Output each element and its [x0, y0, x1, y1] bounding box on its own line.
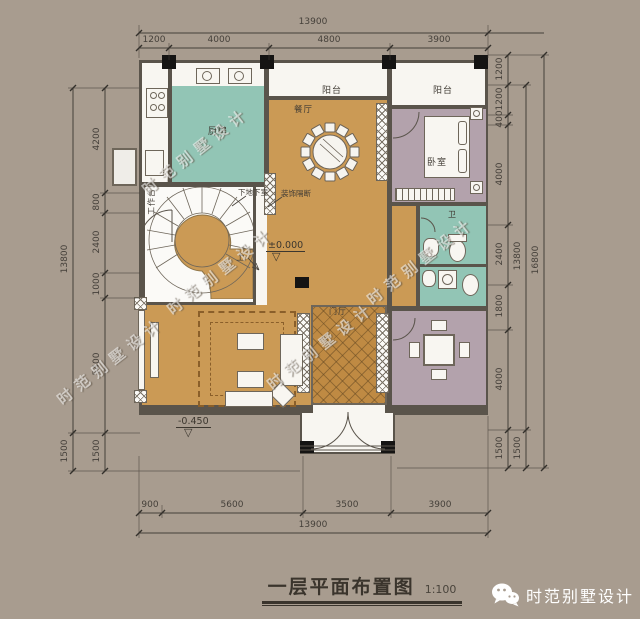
level-zero-symbol: ▽ [272, 252, 280, 262]
door-swings [140, 112, 435, 449]
title-block: 一层平面布置图 1:100 [262, 572, 462, 606]
dim-left-overall: 13800 [60, 237, 70, 281]
dim-right-seg: 2400 [495, 232, 505, 276]
dim-bottom-seg: 5600 [210, 500, 254, 510]
dim-right-middle-porch: 1500 [513, 426, 523, 470]
room-label-kitchen: 厨房 [208, 124, 228, 137]
dim-left-porch: 1500 [60, 429, 70, 473]
partition-label: 装饰隔断 [281, 188, 311, 199]
dim-right-seg: 4000 [495, 152, 505, 196]
dim-top-seg: 4800 [307, 35, 351, 45]
floorplan-page: { "title": {"text": "一层平面布置图", "scale": … [0, 0, 640, 619]
level-entry-symbol: ▽ [184, 428, 192, 438]
dim-left-seg: 2400 [92, 220, 102, 264]
title-underline-thick [262, 601, 462, 604]
dim-right-seg: 1500 [495, 426, 505, 470]
room-label-bedroom: 卧室 [427, 155, 447, 168]
level-entry-marker: -0.450 [176, 416, 211, 428]
dim-bottom-overall: 13900 [291, 520, 335, 530]
footer-brand: 时范别墅设计 [490, 582, 634, 608]
dim-top-seg: 1200 [132, 35, 176, 45]
room-label-balcony-top: 阳台 [322, 83, 342, 96]
room-label-bath: 卫 [448, 209, 457, 220]
dim-right-seg: 1800 [495, 284, 505, 328]
room-label-foyer: 门厅 [329, 306, 347, 317]
dim-bottom-seg: 3900 [418, 500, 462, 510]
dim-left-seg: 5400 [92, 342, 102, 386]
footer-brand-text: 时范别墅设计 [526, 583, 634, 607]
stair-up-label: 上 [236, 250, 246, 263]
porch-steps [300, 446, 395, 450]
dim-left-seg: 1500 [92, 429, 102, 473]
room-label-worktop: 工作台 [146, 188, 157, 215]
to-basement-label: 下地下室 [238, 187, 268, 198]
dim-right-seg: 4000 [495, 357, 505, 401]
dim-top-seg: 3900 [417, 35, 461, 45]
page-title: 一层平面布置图 [268, 576, 415, 598]
dim-right-middle: 13800 [513, 234, 523, 278]
dim-left-seg: 800 [92, 180, 102, 224]
dim-bottom-seg: 900 [128, 500, 172, 510]
room-label-dining: 餐厅 [294, 103, 313, 115]
dim-left-seg: 4200 [92, 117, 102, 161]
wechat-icon [490, 582, 520, 608]
dim-top-seg: 4000 [197, 35, 241, 45]
dim-top-overall: 13900 [291, 17, 335, 27]
title-underline-thin [262, 605, 462, 606]
room-label-balcony-right: 阳台 [433, 83, 453, 96]
title-scale: 1:100 [425, 583, 457, 596]
dim-bottom-seg: 3500 [325, 500, 369, 510]
dim-right-overall: 16800 [531, 238, 541, 282]
dim-right-seg: 400 [495, 97, 505, 141]
dim-left-seg: 1000 [92, 262, 102, 306]
